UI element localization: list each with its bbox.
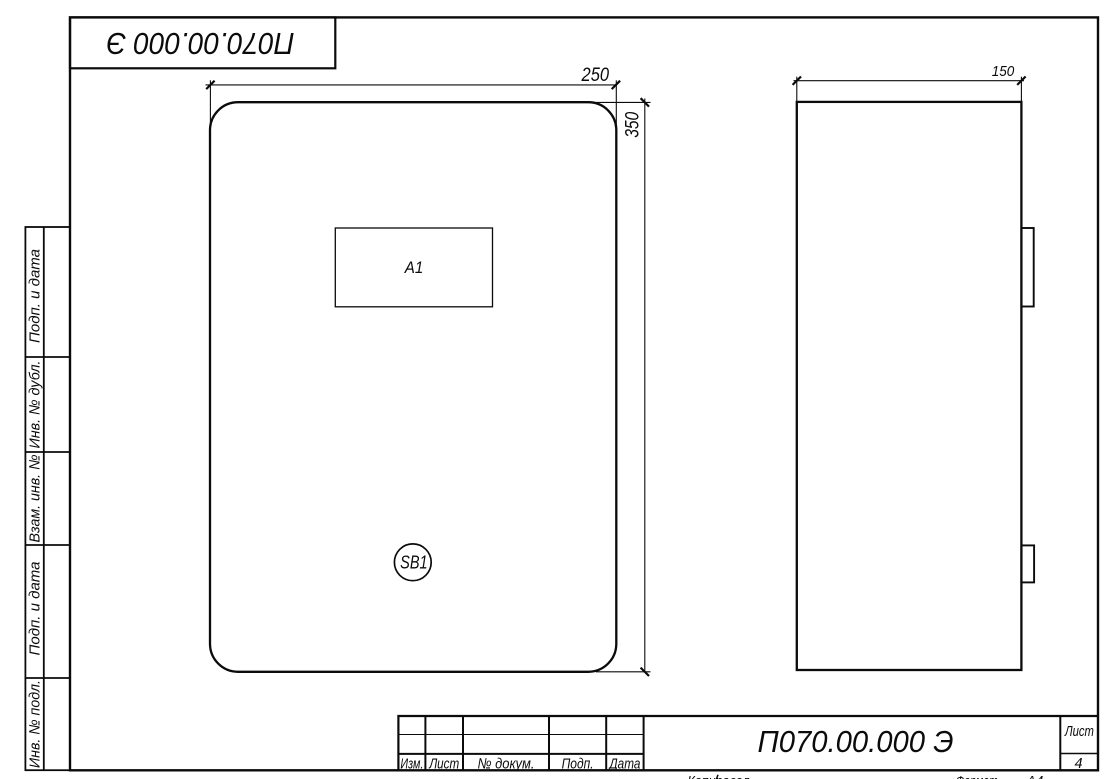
svg-text:4: 4 — [1075, 756, 1083, 772]
svg-text:Инв. № дубл.: Инв. № дубл. — [26, 361, 43, 449]
svg-text:350: 350 — [623, 111, 644, 137]
svg-text:Взам. инв. №: Взам. инв. № — [26, 455, 43, 543]
svg-text:Изм.: Изм. — [400, 755, 423, 772]
svg-text:Дата: Дата — [608, 755, 641, 772]
svg-text:Формат: Формат — [956, 774, 998, 779]
svg-text:150: 150 — [992, 63, 1015, 80]
svg-text:250: 250 — [581, 64, 609, 86]
svg-text:SB1: SB1 — [400, 551, 428, 572]
svg-text:А4: А4 — [1026, 774, 1044, 779]
svg-text:Подп.: Подп. — [562, 755, 594, 772]
svg-text:Копировал: Копировал — [688, 774, 750, 779]
svg-text:П070.00.000 Э: П070.00.000 Э — [758, 724, 954, 759]
svg-text:Лист: Лист — [428, 755, 459, 772]
svg-text:А1: А1 — [404, 258, 423, 277]
svg-text:Лист: Лист — [1064, 724, 1094, 740]
svg-text:П070.00.000 Э: П070.00.000 Э — [107, 26, 295, 61]
svg-text:Инв. № подл.: Инв. № подл. — [26, 680, 43, 768]
svg-text:№ докум.: № докум. — [478, 755, 535, 772]
svg-text:Подп. и дата: Подп. и дата — [26, 249, 43, 343]
svg-text:Подп. и дата: Подп. и дата — [26, 562, 43, 656]
